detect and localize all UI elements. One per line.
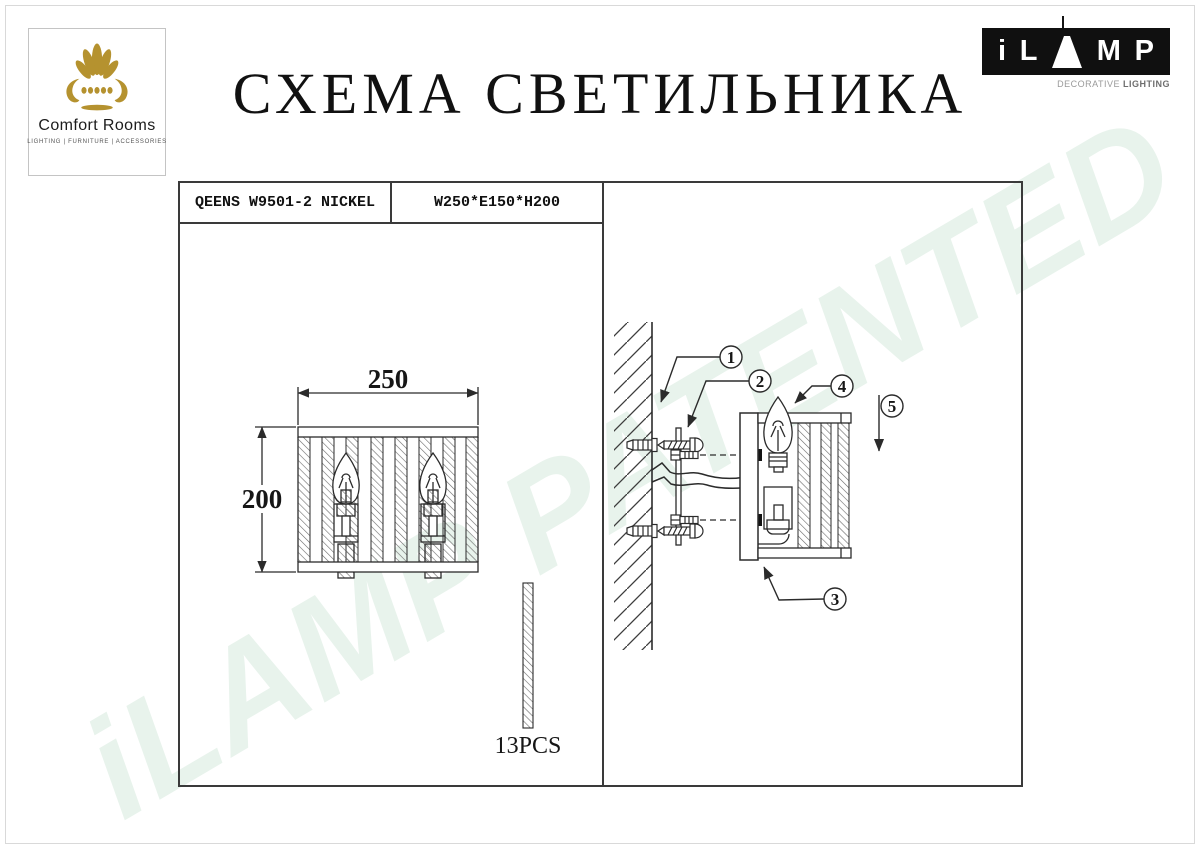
- wall-section: [614, 322, 652, 650]
- shade-bottom-rail: [298, 562, 478, 572]
- slat-sample: 13PCS: [495, 583, 562, 759]
- technical-drawing: 250 200: [0, 0, 1200, 849]
- callout-1-number: 1: [727, 348, 736, 367]
- lamp-socket: [758, 487, 792, 544]
- fixture-slat-1: [798, 423, 810, 548]
- side-view: 1 2 3 4 5: [614, 322, 903, 650]
- socket-wire: [758, 534, 789, 544]
- front-view: 250 200: [242, 364, 562, 759]
- fixture-bottom-rail: [758, 548, 851, 558]
- callout-5-number: 5: [888, 397, 897, 416]
- fixture-backplate: [740, 413, 758, 560]
- dimension-height: 200: [242, 427, 296, 572]
- wall-anchor-bottom: [627, 525, 657, 538]
- shade-front: [298, 427, 478, 578]
- callouts: 1 2 3 4 5: [661, 346, 903, 610]
- callout-1-leader: [661, 357, 720, 402]
- schematic-page: iLAMP PATENTED Comfort Rooms LIGHTING | …: [0, 0, 1200, 849]
- height-label: 200: [242, 484, 283, 514]
- callout-4-leader: [795, 386, 831, 403]
- callout-4-number: 4: [838, 377, 847, 396]
- fixture-slat-2: [821, 423, 831, 548]
- callout-3-number: 3: [831, 590, 840, 609]
- wall-anchor-top: [627, 439, 657, 452]
- callout-2-number: 2: [756, 372, 765, 391]
- candle-bulb-side: [764, 397, 792, 472]
- width-label: 250: [368, 364, 409, 394]
- pieces-label: 13PCS: [495, 733, 562, 759]
- shade-top-rail: [298, 427, 478, 437]
- callout-3-leader: [764, 567, 824, 600]
- dimension-width: 250: [298, 364, 478, 425]
- fixture-side: [740, 397, 851, 560]
- fixture-slat-3: [838, 423, 849, 548]
